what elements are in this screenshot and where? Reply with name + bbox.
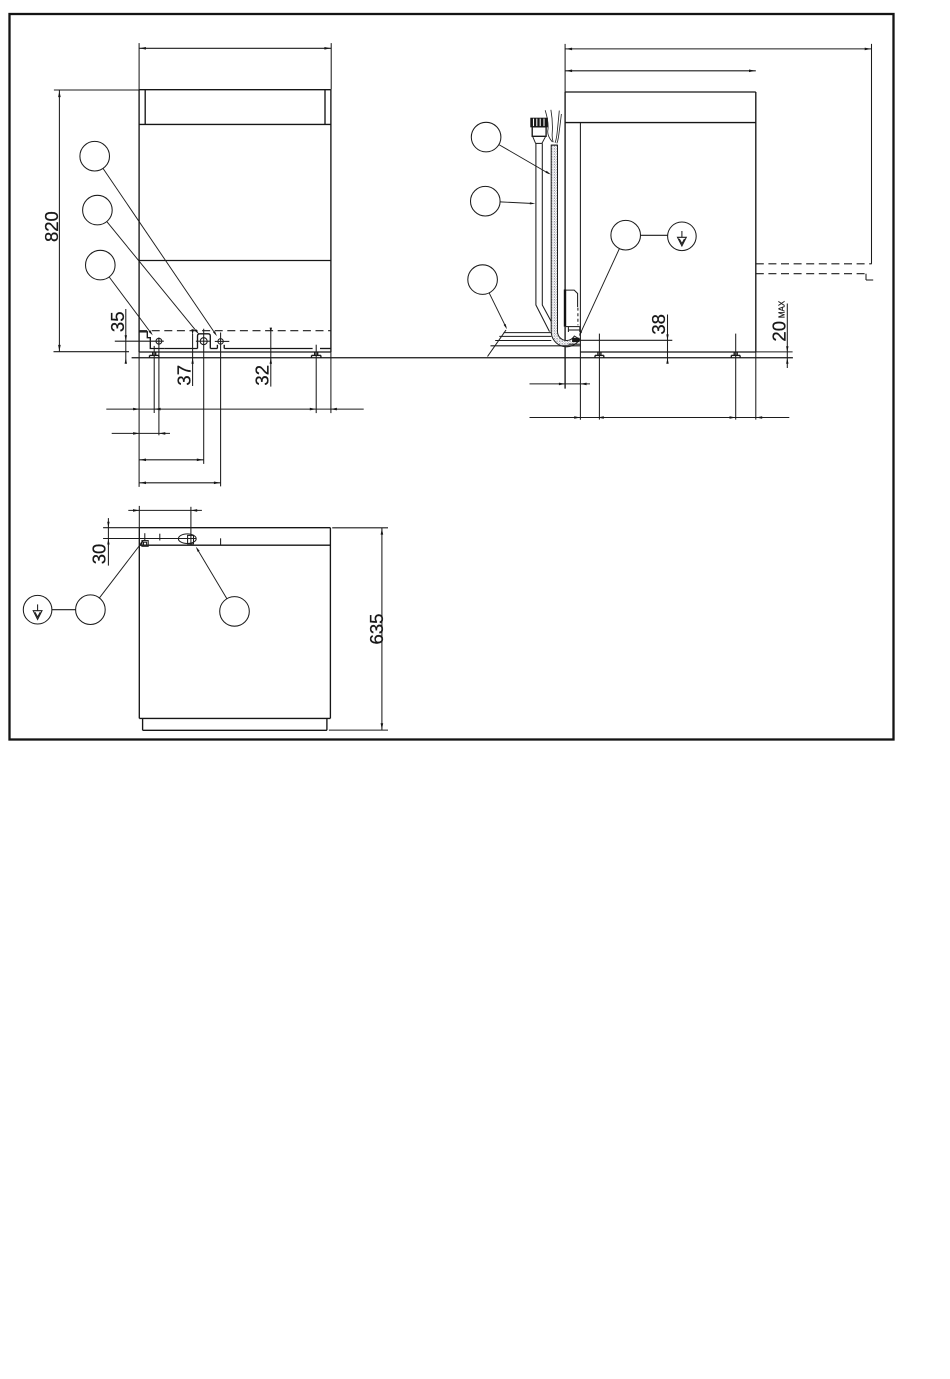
svg-text:32: 32 xyxy=(251,365,272,386)
svg-text:820: 820 xyxy=(41,211,62,242)
svg-text:35: 35 xyxy=(107,312,128,333)
svg-text:30: 30 xyxy=(89,544,110,565)
svg-text:635: 635 xyxy=(366,614,387,645)
svg-text:MAX: MAX xyxy=(778,300,787,318)
svg-text:38: 38 xyxy=(648,314,669,335)
svg-text:20: 20 xyxy=(768,321,789,342)
svg-text:37: 37 xyxy=(173,365,194,386)
